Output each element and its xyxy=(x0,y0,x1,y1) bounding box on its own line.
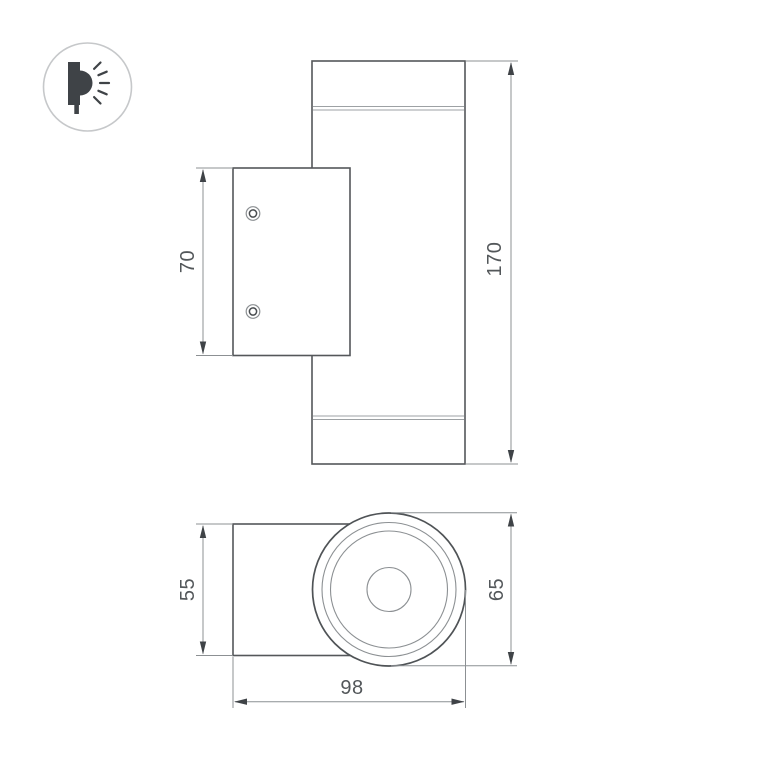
dimension-label-98: 98 xyxy=(340,677,363,699)
screw-hole-bottom xyxy=(246,305,260,319)
arrowhead-up xyxy=(508,514,514,527)
icon-plate-tab xyxy=(74,105,79,114)
dimension-bracket-height: 70 xyxy=(177,168,233,356)
dimension-label-55: 55 xyxy=(177,578,199,601)
light-direction-icon xyxy=(44,43,132,131)
technical-drawing-canvas: 170 70 xyxy=(0,0,767,767)
bottom-view: 55 65 98 xyxy=(177,513,517,708)
dimension-drawing-page: 170 70 xyxy=(0,0,767,767)
arrowhead-left xyxy=(234,699,247,705)
front-view: 170 70 xyxy=(177,61,518,464)
arrowhead-down xyxy=(508,450,514,463)
arrowhead-right xyxy=(452,699,465,705)
arrowhead-down xyxy=(200,642,206,655)
arrowhead-up xyxy=(200,525,206,538)
dimension-bracket-depth: 55 xyxy=(177,524,233,656)
dimension-label-65: 65 xyxy=(486,578,508,601)
screw-hole-top xyxy=(246,207,260,221)
screw-hole-outer-ring xyxy=(246,305,260,319)
dimension-label-70: 70 xyxy=(177,250,199,273)
arrowhead-up xyxy=(200,169,206,182)
lamp-head-outer-circle xyxy=(313,513,466,666)
dimension-label-170: 170 xyxy=(484,242,506,277)
arrowhead-up xyxy=(508,62,514,75)
dimension-overall-height: 170 xyxy=(466,61,518,464)
arrowhead-down xyxy=(508,652,514,665)
arrowhead-down xyxy=(200,342,206,355)
screw-hole-outer-ring xyxy=(246,207,260,221)
mounting-bracket-outline xyxy=(233,168,350,356)
icon-wall-plate xyxy=(68,62,80,105)
